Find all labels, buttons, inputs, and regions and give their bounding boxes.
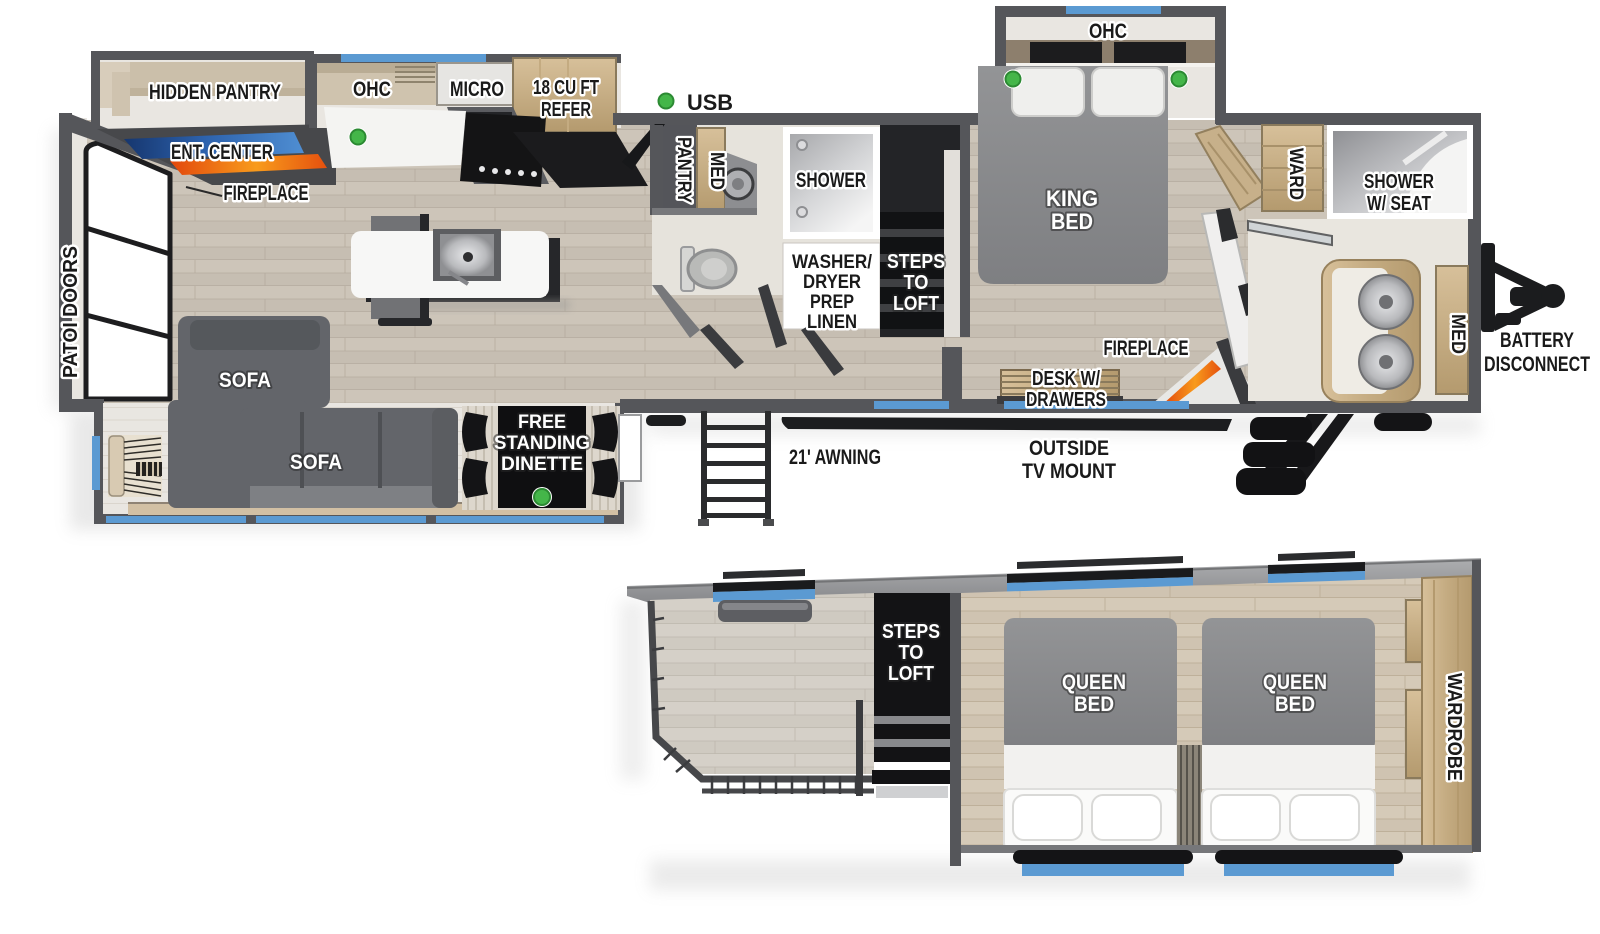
svg-text:STANDING: STANDING — [494, 433, 590, 454]
svg-text:SHOWER: SHOWER — [1364, 171, 1434, 193]
svg-text:BED: BED — [1051, 209, 1093, 234]
svg-text:DRAWERS: DRAWERS — [1026, 389, 1106, 411]
svg-text:TO: TO — [904, 272, 929, 294]
svg-text:WASHER/: WASHER/ — [792, 252, 873, 273]
svg-text:LOFT: LOFT — [893, 293, 939, 315]
svg-text:STEPS: STEPS — [882, 621, 940, 643]
svg-text:REFER: REFER — [541, 99, 591, 121]
svg-text:MICRO: MICRO — [450, 78, 504, 101]
svg-text:OHC: OHC — [353, 78, 391, 101]
svg-text:DESK W/: DESK W/ — [1032, 368, 1100, 390]
svg-text:BED: BED — [1275, 693, 1315, 716]
svg-text:LOFT: LOFT — [888, 663, 934, 685]
svg-text:PATOI DOORS: PATOI DOORS — [60, 246, 82, 378]
svg-text:WARDROBE: WARDROBE — [1443, 673, 1465, 781]
svg-text:SHOWER: SHOWER — [796, 169, 866, 192]
svg-text:DRYER: DRYER — [803, 272, 861, 293]
svg-text:QUEEN: QUEEN — [1062, 671, 1126, 694]
svg-text:SOFA: SOFA — [219, 369, 271, 392]
svg-text:PREP: PREP — [810, 292, 854, 313]
svg-text:W/ SEAT: W/ SEAT — [1367, 193, 1431, 215]
svg-text:QUEEN: QUEEN — [1263, 671, 1327, 694]
svg-text:KING: KING — [1046, 186, 1098, 211]
svg-text:SOFA: SOFA — [290, 451, 342, 474]
svg-text:18 CU FT: 18 CU FT — [533, 77, 599, 99]
svg-text:HIDDEN PANTRY: HIDDEN PANTRY — [149, 81, 281, 104]
svg-text:FIREPLACE: FIREPLACE — [224, 182, 309, 205]
svg-text:MED: MED — [1447, 314, 1468, 354]
svg-text:OHC: OHC — [1089, 20, 1127, 43]
svg-text:PANTRY: PANTRY — [673, 137, 694, 203]
svg-text:TV MOUNT: TV MOUNT — [1022, 460, 1116, 483]
svg-text:USB: USB — [687, 90, 733, 115]
svg-text:STEPS: STEPS — [887, 251, 945, 273]
svg-text:FREE: FREE — [518, 412, 566, 433]
svg-text:TO: TO — [899, 642, 924, 664]
svg-text:WARD: WARD — [1285, 148, 1306, 200]
svg-text:21' AWNING: 21' AWNING — [789, 446, 881, 469]
svg-text:MED: MED — [706, 152, 727, 190]
svg-text:LINEN: LINEN — [807, 312, 857, 333]
svg-text:DISCONNECT: DISCONNECT — [1484, 353, 1590, 376]
svg-text:ENT. CENTER: ENT. CENTER — [171, 141, 273, 164]
svg-text:BATTERY: BATTERY — [1500, 329, 1574, 352]
svg-text:OUTSIDE: OUTSIDE — [1029, 437, 1109, 460]
svg-text:DINETTE: DINETTE — [501, 454, 583, 475]
svg-text:BED: BED — [1074, 693, 1114, 716]
svg-text:FIREPLACE: FIREPLACE — [1104, 337, 1189, 360]
